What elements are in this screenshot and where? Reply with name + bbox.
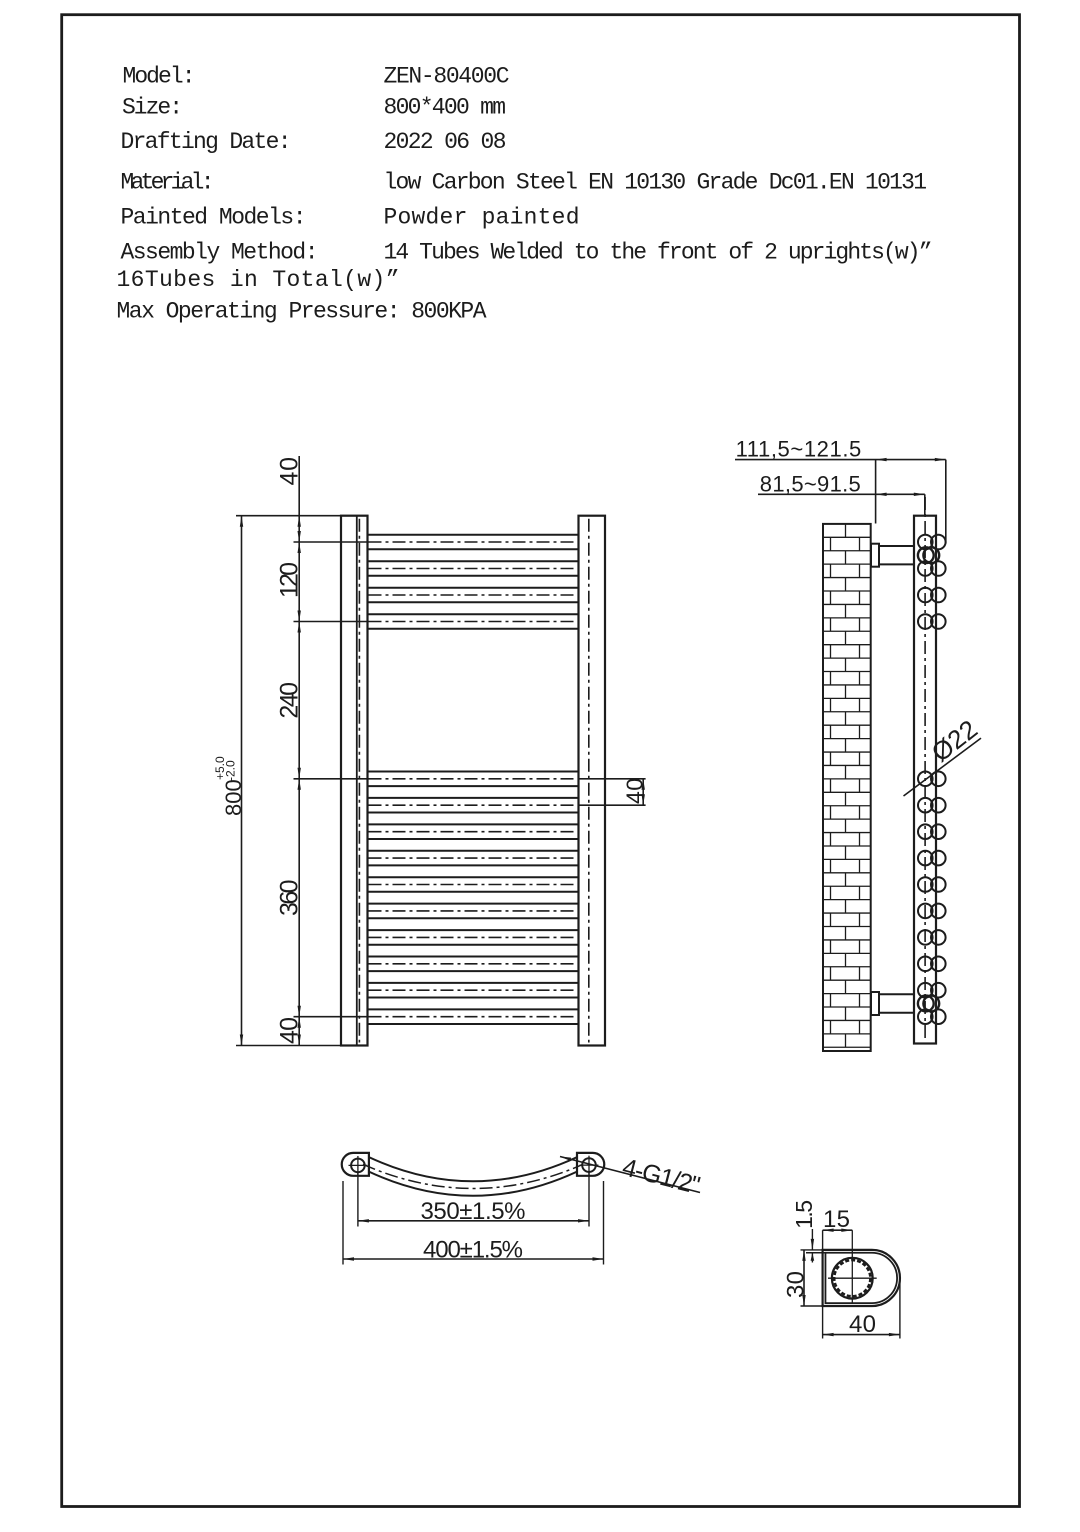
svg-text:40: 40 [622,778,648,804]
svg-text:-2.0: -2.0 [223,760,237,781]
svg-text:800*400 mm: 800*400 mm [384,94,507,120]
svg-text:Powder painted: Powder painted [384,204,580,230]
svg-text:low Carbon Steel EN 10130 Gra: low Carbon Steel EN 10130 Grade Dc01.EN … [384,169,928,195]
svg-text:14 Tubes Welded to the front o: 14 Tubes Welded to the front of 2 uprigh… [384,239,933,265]
svg-text:2022 06 08: 2022 06 08 [384,129,507,155]
svg-text:111,5~121.5: 111,5~121.5 [736,437,862,462]
svg-text:15: 15 [823,1206,850,1233]
svg-text:Model:: Model: [123,64,196,90]
svg-text:40: 40 [276,457,304,486]
svg-text:40: 40 [849,1311,876,1338]
svg-text:30: 30 [783,1271,810,1298]
svg-text:Painted Models:: Painted Models: [121,204,307,230]
svg-text:16Tubes in Total(w)”: 16Tubes in Total(w)” [117,267,400,293]
svg-text:400±1.5%: 400±1.5% [423,1237,523,1264]
svg-text:Drafting Date:: Drafting Date: [121,129,292,155]
svg-text:ZEN-80400C: ZEN-80400C [384,64,510,90]
svg-text:Max Operating Pressure: 800KPA: Max Operating Pressure: 800KPA [117,299,487,325]
svg-text:240: 240 [276,682,304,719]
svg-text:120: 120 [276,562,304,598]
svg-text:40: 40 [276,1017,304,1044]
svg-text:Assembly Method:: Assembly Method: [121,239,319,265]
svg-text:1.5: 1.5 [791,1200,817,1229]
svg-text:800: 800 [221,779,246,816]
svg-text:Material:: Material: [121,169,215,195]
svg-text:360: 360 [276,879,304,916]
svg-text:81,5~91.5: 81,5~91.5 [760,471,861,496]
svg-text:350±1.5%: 350±1.5% [421,1198,526,1225]
svg-text:Size:: Size: [122,94,183,120]
